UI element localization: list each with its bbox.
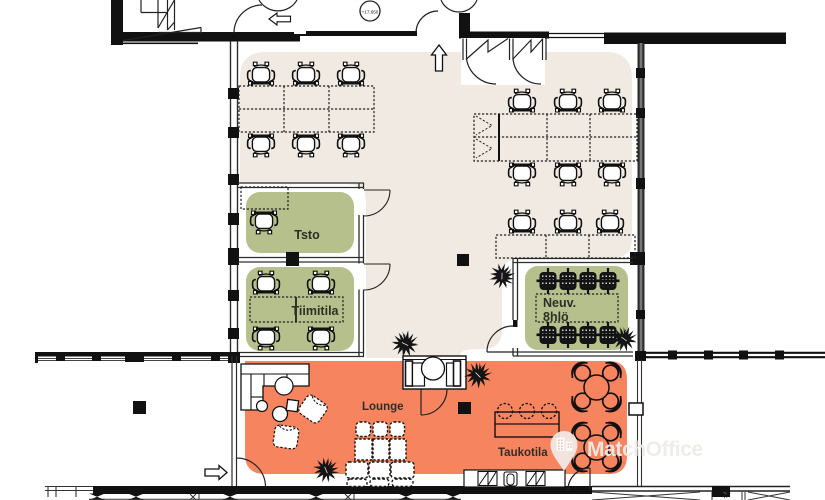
svg-text:MatchOffice: MatchOffice [587, 438, 703, 461]
svg-text:Neuv.: Neuv. [543, 296, 576, 310]
svg-text:Taukotila: Taukotila [498, 447, 548, 459]
svg-text:8hlö: 8hlö [543, 310, 569, 324]
svg-text:+17,650: +17,650 [362, 10, 379, 15]
svg-text:Tiimitila: Tiimitila [291, 304, 339, 318]
svg-text:Tsto: Tsto [294, 228, 320, 242]
svg-text:Lounge: Lounge [362, 401, 404, 413]
